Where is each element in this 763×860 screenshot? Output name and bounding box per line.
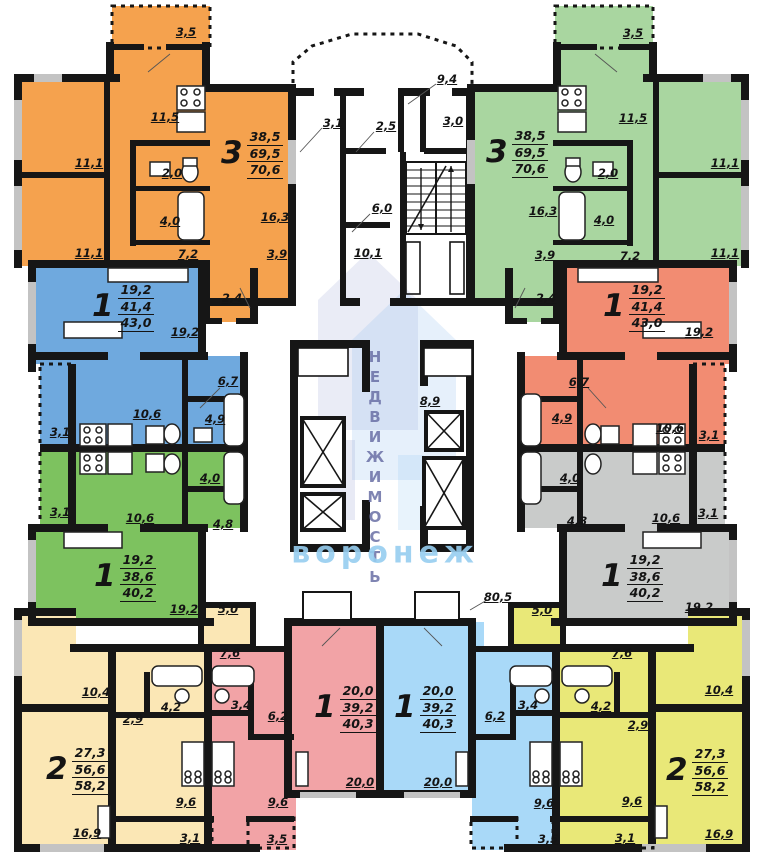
apartment-area-value: 41,4 (629, 299, 666, 316)
sink-icon (177, 112, 205, 132)
staircase (406, 162, 466, 294)
room-area-label: 2,4 (222, 291, 242, 305)
window (288, 140, 296, 184)
window (467, 140, 475, 184)
apartment-area-value: 40,2 (120, 585, 157, 602)
sink-icon (633, 424, 657, 446)
room-area-label: 10,6 (656, 421, 684, 435)
apartment-area-value: 40,2 (627, 585, 664, 602)
room-area-label: 4,8 (213, 517, 233, 531)
room-area-label: 10,6 (652, 511, 680, 525)
room-area-label: 6,2 (485, 709, 505, 723)
apartment-areas-stack: 20,039,240,3 (340, 683, 377, 733)
stove-icon (558, 86, 586, 110)
apartment-areas-stack: 38,569,570,6 (512, 128, 549, 178)
room-area-label: 3,5 (538, 832, 558, 846)
room-area-label: 9,6 (622, 794, 642, 808)
apartment-area-value: 43,0 (118, 315, 155, 332)
room-area-label: 19,2 (170, 602, 198, 616)
toilet-icon (565, 158, 581, 182)
room-area-label: 3,9 (535, 248, 555, 262)
apartment-area-value: 70,6 (512, 161, 549, 178)
room-area-label: 4,2 (591, 699, 611, 713)
apartment-area-value: 19,2 (120, 552, 157, 569)
apartment-area-value: 43,0 (629, 315, 666, 332)
apartment-rooms-count: 3 (221, 138, 243, 169)
room-area-label: 80,5 (484, 590, 512, 604)
room-area-label: 16,3 (261, 210, 289, 224)
apartment-type-label-one-room-bottom-center-left: 120,039,240,3 (314, 683, 376, 733)
room-area-label: 3,5 (176, 25, 196, 39)
room-area-label: 19,2 (685, 600, 713, 614)
bathtub-icon (152, 666, 202, 686)
stove-icon (212, 742, 234, 786)
apartment-rooms-count: 1 (314, 692, 336, 723)
stove-icon (530, 742, 552, 786)
apartment-type-label-one-room-mid-left-upper: 119,241,443,0 (92, 282, 154, 332)
apartment-area-value: 19,2 (627, 552, 664, 569)
room-area-label: 4,2 (161, 700, 181, 714)
room-area-label: 20,0 (424, 775, 452, 789)
apartment-rooms-count: 2 (666, 755, 688, 786)
toilet-icon (164, 424, 180, 444)
room-area-label: 11,5 (619, 111, 647, 125)
apartment-rooms-count: 1 (92, 291, 114, 322)
room-area-label: 19,2 (171, 325, 199, 339)
room-area-label: 7,2 (620, 249, 640, 263)
window (28, 540, 36, 602)
washbasin-icon (575, 689, 589, 703)
room-area-label: 2,9 (628, 718, 648, 732)
window (729, 540, 737, 602)
apartment-area-value: 38,5 (512, 128, 549, 145)
apartment-areas-stack: 38,569,570,6 (247, 129, 284, 179)
apartment-area-value: 69,5 (247, 146, 284, 163)
apartment-area-value: 41,4 (118, 299, 155, 316)
room-area-label: 4,9 (205, 412, 225, 426)
apartment-areas-stack: 27,356,658,2 (692, 746, 729, 796)
room-area-label: 10,4 (82, 685, 110, 699)
room-area-label: 7,6 (612, 646, 632, 660)
room-area-label: 3,1 (699, 428, 719, 442)
window (14, 100, 22, 160)
room-area-label: 7,6 (220, 646, 240, 660)
window (28, 282, 36, 344)
room-area-label: 10,4 (705, 683, 733, 697)
room-area-label: 3,1 (50, 505, 70, 519)
sink-icon (633, 452, 657, 474)
apartment-rooms-count: 2 (46, 754, 68, 785)
apartment-type-label-one-room-mid-right-lower: 119,238,640,2 (601, 552, 663, 602)
apartment-type-label-three-room-top-left: 338,569,570,6 (221, 129, 283, 179)
apartment-area-value: 27,3 (692, 746, 729, 763)
apartment-type-label-one-room-mid-right-upper: 119,241,443,0 (603, 282, 665, 332)
bathtub-icon (178, 192, 204, 240)
room-area-label: 3,0 (443, 114, 463, 128)
apartment-type-label-three-room-top-right: 338,569,570,6 (486, 128, 548, 178)
apartment-area-value: 39,2 (340, 700, 377, 717)
apartment-area-value: 40,3 (420, 716, 457, 733)
room-area-label: 11,1 (711, 156, 739, 170)
room-area-label: 3,1 (180, 831, 200, 845)
room-area-label: 6,2 (268, 709, 288, 723)
radiator (108, 268, 188, 282)
room-area-label: 16,9 (705, 827, 733, 841)
room-area-label: 9,6 (268, 795, 288, 809)
apartment-areas-stack: 20,039,240,3 (420, 683, 457, 733)
radiator (655, 806, 667, 838)
room-area-label: 5,0 (218, 602, 238, 616)
window (40, 844, 104, 852)
room-area-label: 3,9 (267, 247, 287, 261)
room-area-label: 6,0 (372, 201, 392, 215)
room-area-label: 3,1 (698, 506, 718, 520)
sink-icon (558, 112, 586, 132)
apartment-area-value: 20,0 (420, 683, 457, 700)
elevator-shaft (426, 412, 462, 450)
room-area-label: 7,2 (178, 247, 198, 261)
window (34, 74, 62, 82)
room-area-label: 10,6 (126, 511, 154, 525)
bathtub-icon (212, 666, 254, 686)
apartment-rooms-count: 1 (603, 291, 625, 322)
room-area-label: 9,4 (437, 72, 457, 86)
room-area-label: 19,2 (685, 325, 713, 339)
window (404, 792, 460, 798)
elevator-shaft (424, 458, 464, 528)
sink-icon (108, 452, 132, 474)
toilet-icon (164, 454, 180, 474)
apartment-areas-stack: 19,238,640,2 (627, 552, 664, 602)
room-area-label: 6,7 (218, 374, 238, 388)
apartment-area-value: 19,2 (629, 282, 666, 299)
apartment-area-value: 58,2 (692, 779, 729, 796)
room-area-label: 2,0 (162, 166, 182, 180)
sink-icon (108, 424, 132, 446)
toilet-icon (585, 454, 601, 474)
elevator-shaft (302, 494, 344, 530)
washbasin-icon (215, 689, 229, 703)
apartment-area-value: 40,3 (340, 716, 377, 733)
washer-icon (146, 454, 164, 472)
room-area-label: 10,6 (133, 407, 161, 421)
window (703, 74, 731, 82)
room-area-label: 4,8 (567, 514, 587, 528)
window (14, 186, 22, 250)
stove-icon (182, 742, 204, 786)
floor-plan: НЕДВИЖИМОСТЬ воронеж 3,511,511,12,04,011… (0, 0, 763, 860)
apartment-type-label-two-room-bottom-left: 227,356,658,2 (46, 745, 108, 795)
apartment-rooms-count: 1 (601, 561, 623, 592)
room-area-label: 4,0 (200, 471, 220, 485)
apartment-area-value: 38,5 (247, 129, 284, 146)
apartment-areas-stack: 19,241,443,0 (118, 282, 155, 332)
apartment-area-value: 38,6 (120, 569, 157, 586)
bathtub-icon (224, 394, 244, 446)
room-area-label: 10,1 (354, 246, 382, 260)
stove-icon (80, 452, 106, 474)
bathtub-icon (559, 192, 585, 240)
apartment-area-value: 56,6 (72, 762, 109, 779)
room-area-label: 2,0 (598, 166, 618, 180)
room-area-label: 2,4 (536, 291, 556, 305)
room-area-label: 11,1 (75, 246, 103, 260)
room-area-label: 3,4 (231, 698, 251, 712)
room-area-label: 20,0 (346, 775, 374, 789)
washer-icon (601, 426, 619, 444)
apartment-type-label-two-room-bottom-right: 227,356,658,2 (666, 746, 728, 796)
apartment-area-value: 56,6 (692, 763, 729, 780)
stove-icon (560, 742, 582, 786)
room-area-label: 11,1 (711, 246, 739, 260)
radiator (296, 752, 308, 786)
room-area-label: 11,1 (75, 156, 103, 170)
apartment-areas-stack: 27,356,658,2 (72, 745, 109, 795)
room-area-label: 11,5 (151, 110, 179, 124)
window (742, 620, 750, 676)
room-area-label: 8,9 (420, 394, 440, 408)
stove-icon (177, 86, 205, 110)
bathtub-icon (521, 394, 541, 446)
apartment-area-value: 19,2 (118, 282, 155, 299)
bathtub-icon (224, 452, 244, 504)
apartment-type-label-one-room-bottom-center-right: 120,039,240,3 (394, 683, 456, 733)
room-area-label: 3,1 (323, 116, 343, 130)
window (741, 100, 749, 160)
room-area-label: 3,1 (615, 831, 635, 845)
apartment-area-value: 20,0 (340, 683, 377, 700)
apartment-area-value: 27,3 (72, 745, 109, 762)
apartment-type-label-one-room-mid-left-lower: 119,238,640,2 (94, 552, 156, 602)
watermark-city-text: воронеж (291, 536, 479, 571)
room-area-label: 5,0 (532, 603, 552, 617)
apartment-area-value: 70,6 (247, 162, 284, 179)
stove-icon (80, 424, 106, 446)
toilet-icon (182, 158, 198, 182)
washer-icon (146, 426, 164, 444)
window (741, 186, 749, 250)
room-area-label: 4,0 (160, 214, 180, 228)
room-area-label: 6,7 (569, 375, 589, 389)
radiator (64, 532, 122, 548)
room-area-label: 3,5 (623, 26, 643, 40)
bathtub-icon (521, 452, 541, 504)
apartment-area-value: 39,2 (420, 700, 457, 717)
room-area-label: 9,6 (534, 796, 554, 810)
bathtub-icon (562, 666, 612, 686)
room-area-label: 16,3 (529, 204, 557, 218)
room-area-label: 2,9 (123, 712, 143, 726)
radiator (456, 752, 468, 786)
apartment-areas-stack: 19,238,640,2 (120, 552, 157, 602)
vent-boxes (303, 592, 459, 620)
room-area-label: 9,6 (176, 795, 196, 809)
apartment-area-value: 38,6 (627, 569, 664, 586)
apartment-rooms-count: 3 (486, 137, 508, 168)
room-area-label: 2,5 (376, 119, 396, 133)
room-area-label: 3,5 (267, 832, 287, 846)
stove-icon (659, 452, 685, 474)
window (300, 792, 356, 798)
room-area-label: 3,1 (50, 425, 70, 439)
room-area-label: 4,0 (560, 471, 580, 485)
room-area-label: 4,0 (594, 213, 614, 227)
apartment-areas-stack: 19,241,443,0 (629, 282, 666, 332)
room-area-label: 4,9 (552, 411, 572, 425)
window (729, 282, 737, 344)
radiator (578, 268, 658, 282)
apartment-rooms-count: 1 (94, 561, 116, 592)
room-area-label: 3,4 (518, 698, 538, 712)
elevator-shaft (302, 418, 344, 486)
bathtub-icon (510, 666, 552, 686)
toilet-icon (585, 424, 601, 444)
washbasin-icon (194, 428, 212, 442)
room-area-label: 16,9 (73, 826, 101, 840)
apartment-rooms-count: 1 (394, 692, 416, 723)
apartment-area-value: 58,2 (72, 778, 109, 795)
radiator (643, 532, 701, 548)
window (14, 620, 22, 676)
apartment-area-value: 69,5 (512, 145, 549, 162)
